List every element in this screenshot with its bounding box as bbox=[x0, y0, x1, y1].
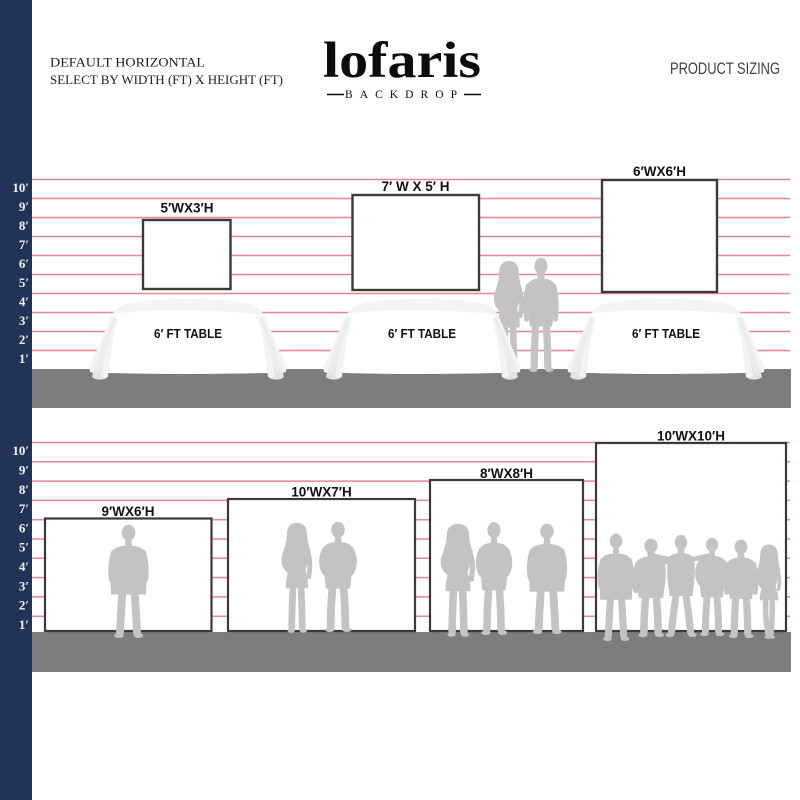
svg-text:10′WX10′H: 10′WX10′H bbox=[657, 429, 725, 444]
svg-text:6′: 6′ bbox=[19, 256, 29, 271]
svg-text:10′: 10′ bbox=[12, 443, 29, 458]
svg-text:6′ FT TABLE: 6′ FT TABLE bbox=[388, 326, 456, 341]
svg-text:7′: 7′ bbox=[19, 501, 29, 516]
svg-text:8′: 8′ bbox=[19, 218, 29, 233]
svg-text:10′: 10′ bbox=[12, 180, 29, 195]
svg-text:lofaris: lofaris bbox=[323, 33, 481, 89]
svg-text:5′WX3′H: 5′WX3′H bbox=[161, 201, 214, 216]
svg-text:2′: 2′ bbox=[19, 598, 29, 613]
svg-text:9′WX6′H: 9′WX6′H bbox=[102, 504, 155, 519]
svg-text:4′: 4′ bbox=[19, 559, 29, 574]
svg-text:BACKDROP: BACKDROP bbox=[345, 89, 463, 101]
svg-text:6′WX6′H: 6′WX6′H bbox=[633, 164, 686, 179]
svg-text:2′: 2′ bbox=[19, 332, 29, 347]
svg-text:9′: 9′ bbox=[19, 199, 29, 214]
svg-text:4′: 4′ bbox=[19, 294, 29, 309]
svg-text:3′: 3′ bbox=[19, 578, 29, 593]
svg-text:8′WX8′H: 8′WX8′H bbox=[480, 466, 533, 481]
svg-text:10′WX7′H: 10′WX7′H bbox=[291, 485, 352, 500]
svg-text:6′ FT TABLE: 6′ FT TABLE bbox=[154, 326, 222, 341]
svg-text:9′: 9′ bbox=[19, 463, 29, 478]
svg-text:SELECT BY WIDTH (FT) X HEIGHT: SELECT BY WIDTH (FT) X HEIGHT (FT) bbox=[50, 72, 283, 87]
svg-text:6′ FT TABLE: 6′ FT TABLE bbox=[632, 326, 700, 341]
svg-text:1′: 1′ bbox=[19, 351, 29, 366]
svg-text:3′: 3′ bbox=[19, 313, 29, 328]
svg-text:PRODUCT SIZING: PRODUCT SIZING bbox=[670, 60, 780, 78]
svg-text:6′: 6′ bbox=[19, 520, 29, 535]
svg-text:1′: 1′ bbox=[19, 617, 29, 632]
svg-text:7′: 7′ bbox=[19, 237, 29, 252]
svg-text:5′: 5′ bbox=[19, 540, 29, 555]
svg-text:8′: 8′ bbox=[19, 482, 29, 497]
svg-text:7′ W X 5′ H: 7′ W X 5′ H bbox=[382, 179, 450, 194]
svg-text:5′: 5′ bbox=[19, 275, 29, 290]
svg-text:DEFAULT HORIZONTAL: DEFAULT HORIZONTAL bbox=[50, 55, 205, 70]
